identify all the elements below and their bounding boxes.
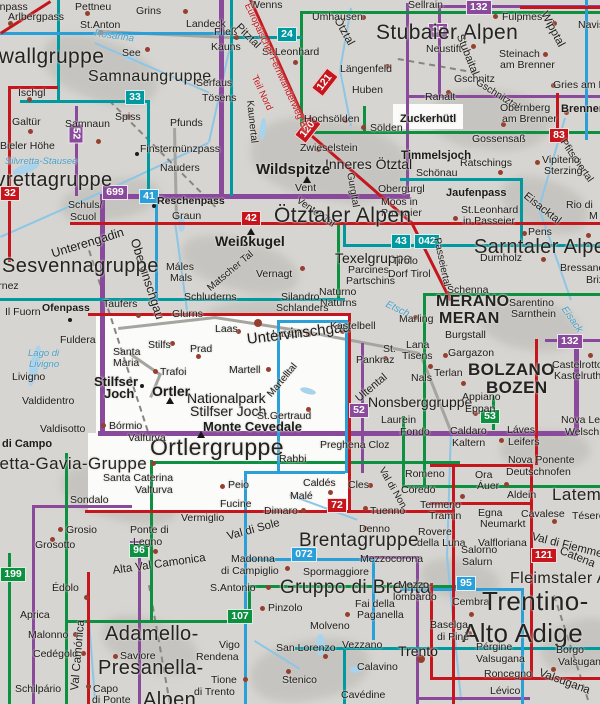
place-label: Längenfeld xyxy=(340,64,392,75)
place-label: Molveno xyxy=(310,621,350,632)
place-label: Vigo xyxy=(219,640,240,651)
place-label: Caldés xyxy=(303,478,336,489)
place-label: Pens xyxy=(528,227,552,238)
place-label: Kastelruth xyxy=(554,371,600,382)
place-label: Malé xyxy=(290,491,313,502)
place-label: Livigno xyxy=(12,372,45,383)
place-label: Aprica xyxy=(20,610,50,621)
sheet-badge[interactable]: 121 xyxy=(531,548,557,563)
place-label: Ora xyxy=(475,470,493,481)
place-label: Pankraz xyxy=(356,355,395,366)
place-label: Salorno xyxy=(461,545,497,556)
place-label: Sarentino xyxy=(509,298,554,309)
sheet-badge[interactable]: 33 xyxy=(125,90,145,105)
region-label: MERAN xyxy=(439,311,500,327)
place-label: Weißkugel xyxy=(215,234,285,248)
place-label: Romeno xyxy=(405,469,445,480)
place-label: Áuer xyxy=(477,481,499,492)
place-label: Laas xyxy=(215,324,238,335)
place-label: Rabbi xyxy=(279,454,306,465)
region-label: Sobretta-Gavia-Gruppe xyxy=(0,455,147,472)
region-label: Ötztaler Alpen xyxy=(274,205,412,226)
place-label: Salurn xyxy=(462,557,492,568)
sheet-badge[interactable]: 121 xyxy=(311,68,339,97)
place-label: Serfaus xyxy=(196,78,232,89)
region-label: Fleimstaler Alpen xyxy=(510,571,600,587)
place-label: Nals xyxy=(411,373,432,384)
place-label: Finstermünzpass xyxy=(140,144,220,155)
water-label: Etsch xyxy=(384,300,411,320)
place-label: Obergurgl xyxy=(378,184,425,195)
place-label: Dimaro xyxy=(264,506,298,517)
place-label: Sarnthein xyxy=(511,309,556,320)
place-label: Rendena xyxy=(196,652,239,663)
pass-marker xyxy=(135,152,139,156)
town-dot xyxy=(460,494,465,499)
place-label: Tirolo xyxy=(392,256,418,267)
place-label: Pinzolo xyxy=(268,603,302,614)
sheet-badge[interactable]: 43 xyxy=(391,234,411,249)
place-label: di Trento xyxy=(194,687,235,698)
town-dot xyxy=(86,684,91,689)
place-label: M xyxy=(589,211,598,222)
place-label: Tione xyxy=(211,675,237,686)
region-label: Stubaier Alpen xyxy=(376,22,518,43)
region-label: Ortlergruppe xyxy=(150,436,284,459)
place-label: Tösens xyxy=(202,93,236,104)
place-label: Vernagt xyxy=(256,269,292,280)
place-label: Valdisotto xyxy=(40,424,85,435)
place-label: Caldaro xyxy=(450,426,487,437)
place-label: Il Fuorn xyxy=(5,307,41,318)
town-dot xyxy=(543,52,548,57)
place-label: Durnholz xyxy=(480,253,522,264)
place-label: Máles xyxy=(166,262,194,273)
town-dot xyxy=(145,47,150,52)
place-label: Schluderns xyxy=(184,292,237,303)
place-label: Mezzocorona xyxy=(360,554,423,565)
place-label: Trento xyxy=(398,644,438,658)
region-label: Adamello- xyxy=(105,624,199,644)
place-label: Welschnofen xyxy=(565,427,600,438)
region-label: Alpen xyxy=(143,690,196,704)
place-label: Roncegno xyxy=(484,669,532,680)
place-label: Neumarkt xyxy=(480,519,526,530)
place-label: Sölden xyxy=(370,123,403,134)
pass-marker xyxy=(68,318,72,322)
sheet-badge[interactable]: 95 xyxy=(456,576,476,591)
sheet-boundary-line[interactable] xyxy=(32,505,35,704)
place-label: Nova Ponente xyxy=(508,455,575,466)
place-label: Gossensaß xyxy=(472,134,526,145)
town-dot xyxy=(493,14,498,19)
sheet-boundary-line[interactable] xyxy=(244,471,345,474)
place-label: Stenico xyxy=(282,675,317,686)
place-label: Alta Val Camonica xyxy=(112,553,206,577)
place-label: Reschenpass xyxy=(157,196,225,207)
town-dot xyxy=(499,438,504,443)
place-label: Kaltern xyxy=(452,438,485,449)
place-label: Valdidentro xyxy=(22,396,74,407)
sheet-badge[interactable]: 107 xyxy=(227,609,253,624)
town-dot xyxy=(254,319,262,327)
place-label: Termeno xyxy=(420,500,461,511)
place-label: Vipiteno xyxy=(542,155,580,166)
town-dot xyxy=(522,231,527,236)
place-label: Ortler xyxy=(152,384,190,398)
place-label: Nonsberggruppe xyxy=(368,395,472,409)
place-label: Terlan xyxy=(434,368,463,379)
place-label: Schuls/ xyxy=(68,200,102,211)
region-label: Silvrettagruppe xyxy=(0,170,113,190)
place-label: in Passeier xyxy=(463,216,515,227)
sheet-badge[interactable]: 72 xyxy=(327,498,347,513)
place-label: Trafoi xyxy=(160,367,186,378)
town-dot xyxy=(469,612,474,617)
place-label: Nauders xyxy=(160,163,200,174)
place-label: Grosotto xyxy=(35,540,75,551)
place-label: Paganella xyxy=(357,610,404,621)
place-label: Parcines xyxy=(348,265,389,276)
place-label: Grins xyxy=(136,6,161,17)
town-dot xyxy=(96,139,101,144)
place-label: Valsugana xyxy=(558,657,600,668)
place-label: della Luna xyxy=(417,538,465,549)
region-label: MERANO xyxy=(436,294,510,310)
sheet-badge[interactable]: 199 xyxy=(0,567,26,582)
place-label: St.Leonhard xyxy=(461,205,518,216)
region-label: Verwallgruppe xyxy=(0,46,104,67)
place-label: Ponte di xyxy=(130,525,169,536)
place-label: Stilfser Joch xyxy=(190,404,266,418)
place-label: Pettneu xyxy=(75,2,111,13)
place-label: Kastelbell xyxy=(330,321,376,332)
place-label: Samnaun xyxy=(65,119,110,130)
place-label: Monte Cevedale xyxy=(203,420,302,433)
place-label: Cavédine xyxy=(341,690,385,701)
place-label: Maria xyxy=(113,358,139,369)
place-label: Valsugana xyxy=(476,654,525,665)
place-label: Valsugana xyxy=(537,668,591,697)
place-label: Édolo xyxy=(52,583,79,594)
place-label: Ischgl xyxy=(18,88,45,99)
place-label: Castelrotto xyxy=(552,360,600,371)
town-dot xyxy=(363,506,368,511)
town-dot xyxy=(498,170,503,175)
town-dot xyxy=(285,566,290,571)
place-label: Galtür xyxy=(12,117,41,128)
place-label: di Pinè xyxy=(437,632,469,643)
town-dot xyxy=(300,266,305,271)
place-label: Hochsölden xyxy=(304,114,359,125)
town-dot xyxy=(151,461,156,466)
region-label: BOLZANO xyxy=(468,361,555,378)
place-label: Huben xyxy=(352,85,383,96)
place-label: Fucine xyxy=(220,499,252,510)
place-label: Brixen xyxy=(586,275,600,286)
town-dot xyxy=(153,549,158,554)
place-label: lombardo xyxy=(393,592,437,603)
town-dot xyxy=(84,595,89,600)
place-label: Val di Sole xyxy=(226,518,281,543)
place-label: Madonna xyxy=(231,554,275,565)
town-dot xyxy=(428,364,433,369)
place-label: Silandro xyxy=(281,292,320,303)
place-label: Wipptal xyxy=(538,10,566,49)
place-label: Rovere xyxy=(418,527,452,538)
place-label: Scuol xyxy=(70,212,96,223)
place-label: Fondo xyxy=(400,427,430,438)
place-label: Pérgine xyxy=(476,642,512,653)
place-label: Sterzing xyxy=(544,166,583,177)
place-label: Fuldera xyxy=(60,335,96,346)
place-label: Stilfs xyxy=(148,340,171,351)
place-label: Preghena Cloz xyxy=(320,440,389,451)
place-label: Burgstall xyxy=(445,330,486,341)
map-canvas: 3324430424107295132356995252132321211204… xyxy=(0,0,600,704)
place-label: Schilpário xyxy=(15,684,61,695)
sheet-boundary-line[interactable] xyxy=(520,6,600,9)
place-label: S.Antonio xyxy=(210,583,256,594)
place-label: Ofenpass xyxy=(42,303,90,314)
town-dot xyxy=(588,353,593,358)
place-label: Calavino xyxy=(357,662,398,673)
place-label: Santa xyxy=(113,347,140,358)
place-label: Grosio xyxy=(66,525,97,536)
place-label: di Ponte xyxy=(92,695,131,704)
place-label: Brenner xyxy=(561,104,600,115)
water-label: Silvretta-Stausee xyxy=(5,157,77,167)
place-label: Spormaggiore xyxy=(303,567,369,578)
place-label: Taufers xyxy=(103,299,137,310)
region-label: Presanella- xyxy=(98,658,204,678)
place-label: am Brenner xyxy=(502,114,557,125)
place-label: Lévico xyxy=(490,686,520,697)
place-label: Láves xyxy=(507,425,535,436)
sheet-boundary-line[interactable] xyxy=(65,453,68,704)
place-label: Inneres Ötztal xyxy=(325,157,412,171)
town-dot xyxy=(58,527,63,532)
sheet-badge[interactable]: 52 xyxy=(349,403,369,418)
place-label: Spiss xyxy=(115,112,141,123)
place-label: Dorf Tirol xyxy=(388,269,431,280)
place-label: Aldein xyxy=(507,490,536,501)
place-label: Leifers xyxy=(508,437,540,448)
region-label: Sesvennagruppe xyxy=(2,256,159,276)
sheet-badge[interactable]: 42 xyxy=(241,211,261,226)
place-label: Sondalo xyxy=(70,495,109,506)
place-label: Martell xyxy=(229,365,261,376)
place-label: Borgo xyxy=(556,645,584,656)
town-dot xyxy=(443,353,448,358)
place-label: Jaufenpass xyxy=(446,188,507,199)
sheet-badge[interactable]: 24 xyxy=(277,27,297,42)
place-label: Vent xyxy=(295,183,316,194)
town-dot xyxy=(266,585,271,590)
sheet-badge[interactable]: 132 xyxy=(557,334,583,349)
place-label: Zernez xyxy=(0,281,19,292)
place-label: Zuckerhütl xyxy=(400,114,456,125)
place-label: Prad xyxy=(190,344,212,355)
place-label: Tramin xyxy=(429,511,461,522)
place-label: Legno xyxy=(133,537,162,548)
place-label: Schönau xyxy=(416,168,457,179)
place-label: Rio di xyxy=(566,200,593,211)
sheet-badge[interactable]: 41 xyxy=(139,189,159,204)
town-dot xyxy=(153,369,158,374)
town-dot xyxy=(183,9,188,14)
town-dot xyxy=(28,129,33,134)
place-label: Peio xyxy=(228,480,249,491)
place-label: Vermiglio xyxy=(181,513,224,524)
town-dot xyxy=(101,423,106,428)
town-dot xyxy=(136,313,141,318)
place-label: Capo xyxy=(93,684,118,695)
town-dot xyxy=(328,490,333,495)
town-dot xyxy=(461,381,466,386)
place-label: Cavalese xyxy=(521,509,565,520)
place-label: Fulpmes xyxy=(502,12,542,23)
place-label: Steinach xyxy=(499,49,540,60)
place-label: Valfurva xyxy=(128,433,166,444)
place-label: Vezzano xyxy=(342,640,382,651)
town-dot xyxy=(323,654,328,659)
region-label: Latemar xyxy=(552,486,600,503)
place-label: St. xyxy=(383,344,396,355)
town-dot xyxy=(345,612,350,617)
place-label: Arlbergpass xyxy=(8,12,64,23)
town-dot xyxy=(535,160,540,165)
town-dot xyxy=(293,60,298,65)
place-label: di Campiglio xyxy=(221,566,279,577)
place-label: San Lorenzo xyxy=(276,643,336,654)
region-label: Trentino- xyxy=(482,588,589,614)
place-label: Fai della xyxy=(355,599,395,610)
place-label: Tisens xyxy=(402,351,433,362)
place-label: Sellrain xyxy=(408,0,443,11)
town-dot xyxy=(260,606,265,611)
place-label: Gargazon xyxy=(448,348,494,359)
place-label: Córedó xyxy=(401,485,435,496)
place-label: Eppan xyxy=(465,404,495,415)
place-label: Ranalt xyxy=(425,92,455,103)
town-dot xyxy=(220,484,225,489)
place-label: Nova Levante xyxy=(561,415,600,426)
place-label: Gries am Brenner xyxy=(553,80,600,91)
place-label: Obernberg xyxy=(500,103,550,114)
place-label: Laurein xyxy=(381,415,416,426)
town-dot xyxy=(286,669,291,674)
place-label: See xyxy=(122,48,141,59)
place-label: Valfurva xyxy=(135,485,173,496)
place-label: Egna xyxy=(478,508,503,519)
water-label: Livigno xyxy=(29,360,59,370)
sheet-badge[interactable]: 132 xyxy=(466,0,492,15)
place-label: Tésero xyxy=(572,511,600,522)
pass-marker xyxy=(140,384,144,388)
place-label: Graun xyxy=(172,211,201,222)
place-label: di Campo xyxy=(2,439,52,450)
place-label: Wildspitze xyxy=(256,162,330,177)
town-dot xyxy=(361,125,366,130)
region-label: Samnaungruppe xyxy=(88,69,212,85)
place-label: Santa Caterina xyxy=(103,473,173,484)
town-dot xyxy=(266,367,271,372)
town-dot xyxy=(453,216,458,221)
place-label: Bieler Höhe xyxy=(0,141,55,152)
place-label: Mezzo- xyxy=(398,580,432,591)
place-label: Bórmio xyxy=(109,421,142,432)
town-dot xyxy=(243,677,248,682)
place-label: Navis xyxy=(578,20,600,31)
place-label: Kauns xyxy=(211,42,241,53)
place-label: Joch xyxy=(104,387,134,400)
place-label: Zwieselstein xyxy=(300,143,358,154)
place-label: Kaunertal xyxy=(244,100,258,144)
place-label: Baselga xyxy=(430,620,468,631)
place-label: Glurns xyxy=(172,309,203,320)
place-label: Malonno xyxy=(28,630,68,641)
place-label: Mals xyxy=(170,273,192,284)
place-label: Naturno xyxy=(319,287,356,298)
sheet-boundary-line[interactable] xyxy=(416,697,530,700)
place-label: Pfunds xyxy=(170,118,203,129)
town-dot xyxy=(301,508,306,513)
place-label: Bressanone xyxy=(560,263,600,274)
town-dot xyxy=(504,482,509,487)
place-label: Appiano xyxy=(462,392,501,403)
water-label: Lago di xyxy=(28,349,59,359)
place-label: am Brenner xyxy=(500,60,555,71)
region-label: Brentagruppe xyxy=(299,531,419,550)
place-label: Cles xyxy=(348,480,369,491)
pass-marker xyxy=(152,204,156,208)
place-label: Lana xyxy=(406,340,429,351)
place-label: Umhausen xyxy=(312,12,363,23)
place-label: Schlanders xyxy=(276,303,329,314)
place-label: Deutschnofen xyxy=(506,467,571,478)
